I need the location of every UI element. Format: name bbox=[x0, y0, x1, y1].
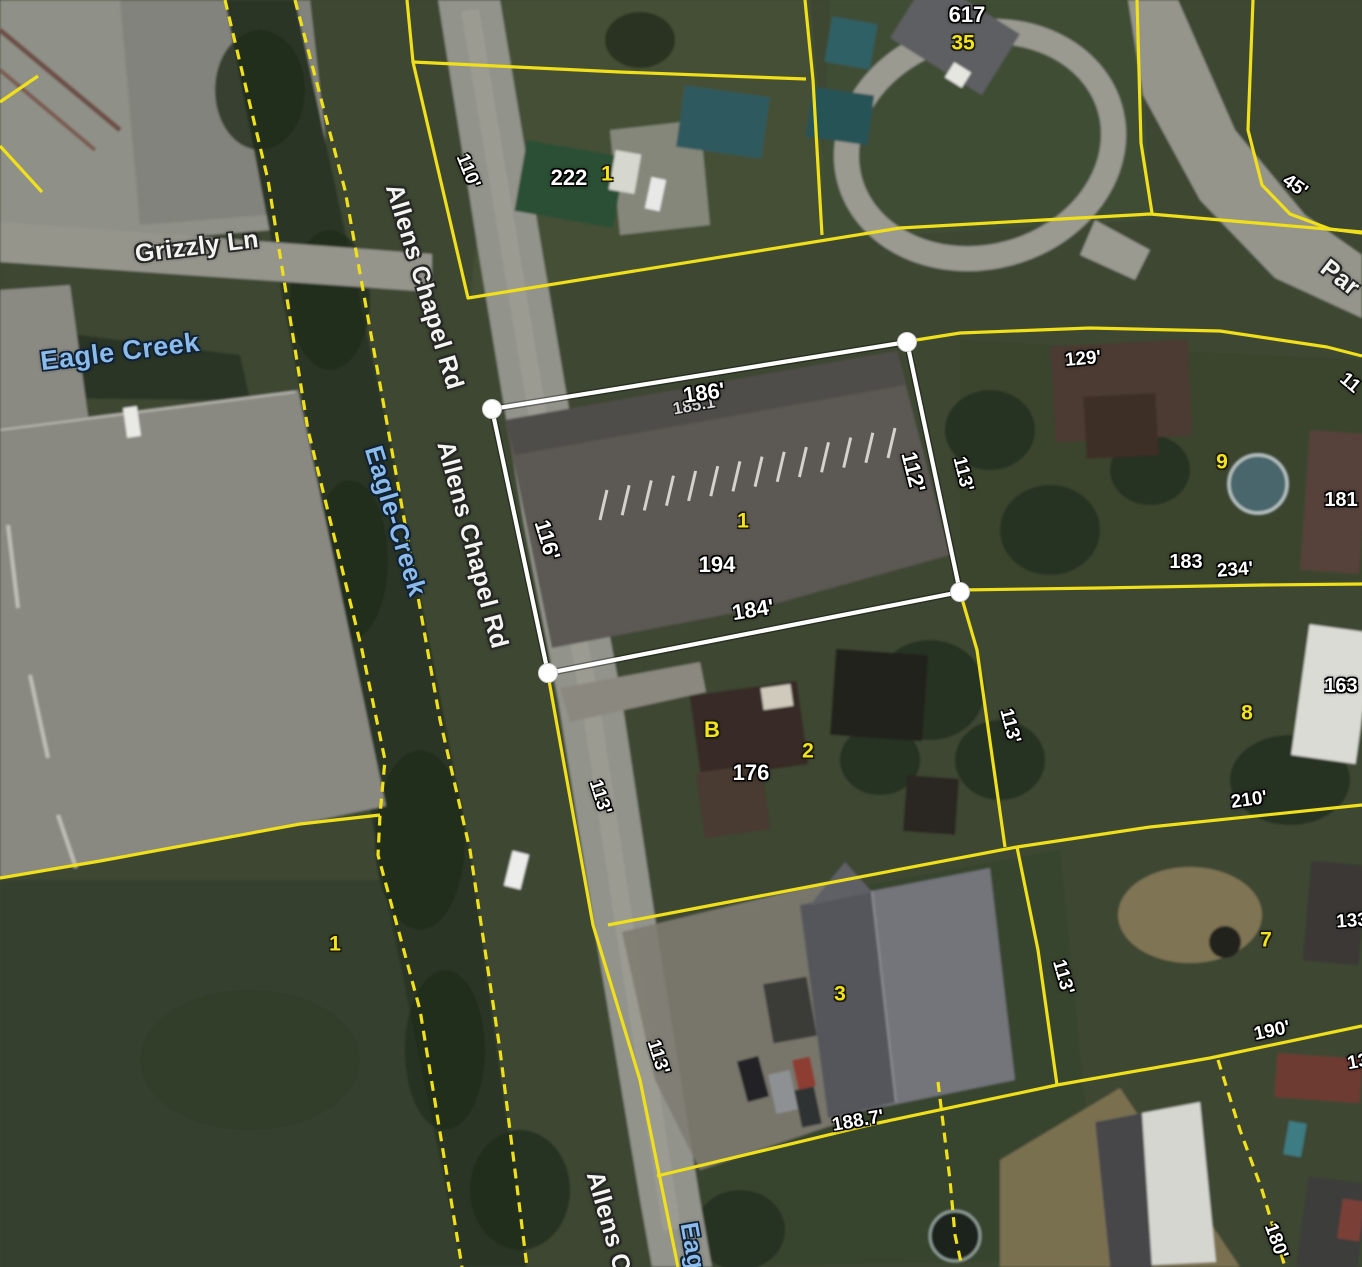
dimension-label: 133 bbox=[1336, 910, 1362, 931]
dimension-label: 180' bbox=[1261, 1221, 1291, 1262]
lot-number-label: 2 bbox=[802, 741, 814, 762]
lot-number-label: 7 bbox=[1260, 930, 1272, 951]
lot-number-label: 8 bbox=[1241, 703, 1253, 724]
dimension-label: 13 bbox=[1346, 1051, 1362, 1073]
dimension-label: 113' bbox=[1049, 957, 1077, 996]
dimension-label: 186' bbox=[682, 379, 727, 407]
water-label: Eag bbox=[676, 1221, 709, 1267]
dimension-label: 210' bbox=[1230, 788, 1269, 812]
dimension-label: 11 bbox=[1336, 369, 1362, 396]
address-label: 176 bbox=[733, 762, 770, 784]
dimension-label: 188.7' bbox=[831, 1107, 886, 1135]
dimension-label: 129' bbox=[1064, 348, 1102, 370]
dimension-label: 190' bbox=[1252, 1018, 1291, 1044]
dimension-label: 45' bbox=[1279, 171, 1311, 201]
lot-number-label: 1 bbox=[601, 164, 613, 185]
dimension-label: 113' bbox=[996, 707, 1023, 746]
dimension-label: 113' bbox=[644, 1037, 673, 1076]
address-label: 183 bbox=[1169, 552, 1202, 572]
dimension-label: 234' bbox=[1216, 559, 1253, 580]
water-label: Eagle-Creek bbox=[361, 443, 431, 600]
lot-number-label: B bbox=[704, 719, 720, 741]
street-label: Allens Chapel Rd bbox=[381, 181, 467, 393]
map-labels-layer: 110'45'185.1'186'112'113'116'184'129'234… bbox=[0, 0, 1362, 1267]
address-label: 163 bbox=[1324, 676, 1357, 696]
street-label: Grizzly Ln bbox=[134, 227, 261, 267]
lot-number-label: 35 bbox=[951, 33, 974, 54]
dimension-label: 113' bbox=[586, 777, 615, 816]
lot-number-label: 1 bbox=[737, 511, 749, 532]
water-label: Eagle Creek bbox=[39, 329, 201, 375]
address-label: 194 bbox=[699, 554, 736, 576]
address-label: 222 bbox=[551, 167, 588, 189]
dimension-label: 113' bbox=[950, 455, 977, 494]
lot-number-label: 1 bbox=[329, 934, 341, 955]
address-label: 181 bbox=[1324, 490, 1357, 510]
map-viewport[interactable]: 110'45'185.1'186'112'113'116'184'129'234… bbox=[0, 0, 1362, 1267]
street-label: Allens C bbox=[582, 1169, 635, 1267]
lot-number-label: 3 bbox=[834, 984, 846, 1005]
dimension-label: 112' bbox=[897, 450, 928, 495]
address-label: 617 bbox=[949, 4, 986, 26]
lot-number-label: 9 bbox=[1216, 452, 1228, 473]
dimension-label: 110' bbox=[453, 151, 484, 191]
dimension-label: 116' bbox=[531, 517, 564, 562]
street-label: Allens Chapel Rd bbox=[432, 439, 511, 652]
street-label: Par bbox=[1316, 255, 1362, 300]
dimension-label: 184' bbox=[731, 596, 776, 624]
